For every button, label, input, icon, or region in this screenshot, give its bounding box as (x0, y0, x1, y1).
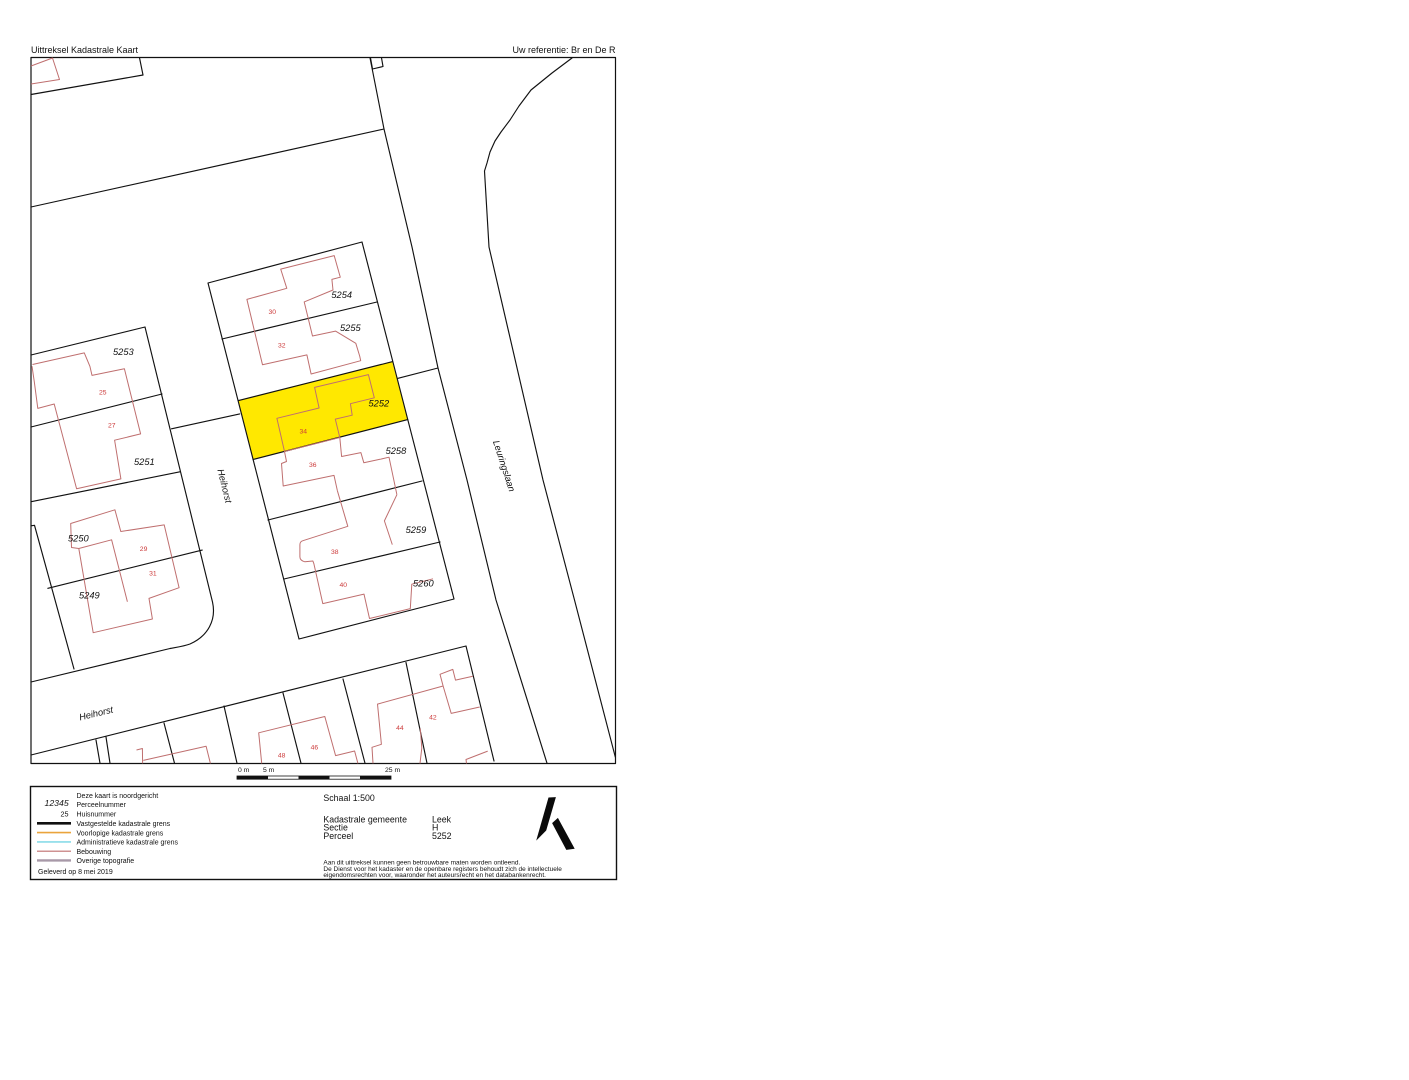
svg-text:Uittreksel Kadastrale Kaart: Uittreksel Kadastrale Kaart (31, 45, 139, 55)
svg-text:Administratieve kadastrale gre: Administratieve kadastrale grens (77, 840, 179, 847)
svg-text:Uw referentie: Br en De R: Uw referentie: Br en De R (512, 45, 616, 55)
svg-text:Perceel: Perceel (323, 831, 353, 841)
svg-text:Vastgestelde kadastrale grens: Vastgestelde kadastrale grens (77, 821, 171, 828)
svg-text:Perceelnummer: Perceelnummer (77, 802, 127, 809)
svg-text:36: 36 (309, 462, 317, 469)
svg-text:Voorlopige kadastrale grens: Voorlopige kadastrale grens (77, 830, 164, 837)
svg-text:5259: 5259 (406, 525, 427, 535)
svg-text:12345: 12345 (45, 798, 69, 808)
svg-text:27: 27 (108, 423, 116, 430)
svg-text:5253: 5253 (113, 347, 135, 357)
svg-text:25: 25 (61, 810, 69, 819)
svg-text:5254: 5254 (331, 290, 352, 300)
svg-text:44: 44 (396, 725, 404, 732)
svg-text:38: 38 (331, 549, 339, 556)
svg-text:48: 48 (278, 753, 286, 760)
svg-text:Geleverd op 8 mei 2019: Geleverd op 8 mei 2019 (38, 869, 113, 876)
svg-text:25: 25 (99, 390, 107, 397)
svg-text:34: 34 (300, 429, 308, 436)
svg-text:5250: 5250 (68, 534, 90, 544)
svg-text:Huisnummer: Huisnummer (77, 812, 117, 819)
svg-text:5251: 5251 (134, 457, 155, 467)
svg-text:5249: 5249 (79, 591, 100, 601)
svg-text:30: 30 (269, 309, 277, 316)
svg-text:40: 40 (340, 582, 348, 589)
svg-text:5252: 5252 (369, 399, 391, 409)
svg-text:5252: 5252 (432, 831, 452, 841)
svg-text:5255: 5255 (340, 323, 362, 333)
svg-text:5258: 5258 (386, 446, 408, 456)
svg-text:Bebouwing: Bebouwing (77, 849, 112, 856)
svg-text:29: 29 (140, 546, 148, 553)
svg-text:32: 32 (278, 343, 286, 350)
svg-text:eigendomsrechten voor, waarond: eigendomsrechten voor, waaronder het aut… (323, 872, 546, 879)
svg-text:Deze kaart is noordgericht: Deze kaart is noordgericht (77, 793, 159, 800)
svg-text:Overige topografie: Overige topografie (77, 858, 135, 865)
svg-text:Schaal 1:500: Schaal 1:500 (323, 793, 374, 803)
svg-text:5 m: 5 m (263, 767, 275, 774)
svg-text:46: 46 (311, 745, 319, 752)
svg-text:31: 31 (149, 571, 157, 578)
svg-text:25 m: 25 m (385, 767, 400, 774)
svg-text:5260: 5260 (413, 579, 435, 589)
svg-text:42: 42 (429, 714, 437, 721)
svg-text:0 m: 0 m (238, 767, 250, 774)
